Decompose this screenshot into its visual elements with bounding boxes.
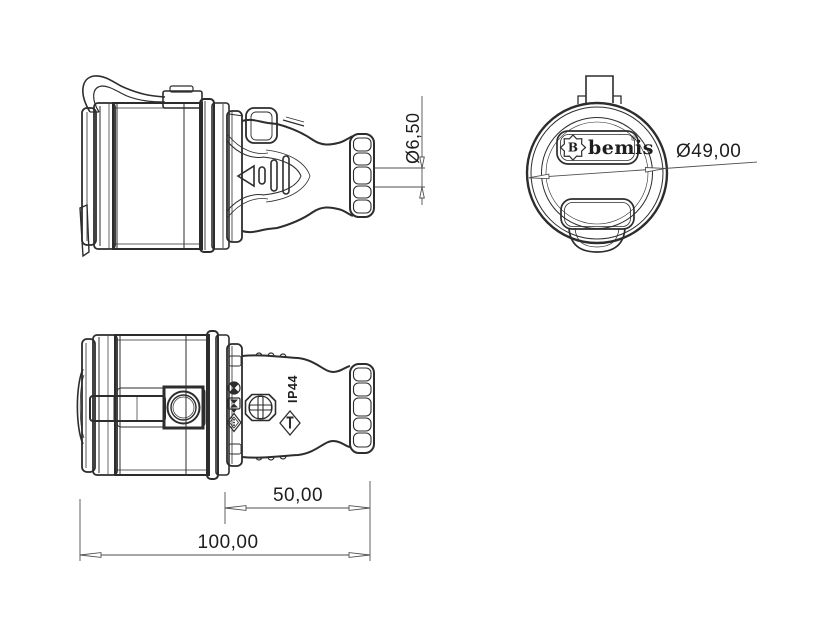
dimension-cable-entry: Ø6,50 [375, 96, 425, 205]
body-cylinder [113, 103, 202, 249]
dim-arrow-icon [349, 506, 370, 511]
dim-label-overall: 100,00 [197, 532, 258, 553]
diamond-tool-icon [280, 411, 300, 435]
latch-slider [90, 387, 205, 428]
dim-label-front-section: 50,00 [273, 485, 323, 506]
phillips-screw-icon [246, 395, 276, 421]
side-view-capped: Ø6,50 [80, 76, 425, 256]
triangle-marker-icon [238, 166, 254, 186]
neck-top-edge [242, 355, 350, 372]
strap-anchor-block [163, 91, 202, 108]
dim-arrow-icon [529, 174, 549, 179]
dim-label-cable-entry: Ø6,50 [403, 112, 423, 164]
body-cylinder [115, 335, 209, 475]
dim-arrow-icon [80, 553, 101, 558]
dim-arrow-icon [420, 187, 425, 198]
dim-arrow-icon [225, 506, 246, 511]
logo-initial: B [568, 141, 578, 155]
technical-drawing-canvas: Ø6,50 B bemis ® [0, 0, 825, 625]
latch-button [168, 392, 200, 424]
dim-label-diameter: Ø49,00 [676, 141, 741, 162]
front-view: B bemis ® Ø49,00 [527, 76, 757, 252]
neck-bottom-edge [242, 207, 353, 232]
registered-mark: ® [631, 135, 637, 143]
latch-button-housing [164, 387, 203, 428]
drawing-sheet: Ø6,50 B bemis ® [0, 0, 825, 625]
logo-brand-text: bemis [588, 137, 654, 159]
hinge-tab [586, 76, 613, 103]
neck-bottom-edge [242, 441, 350, 458]
top-view: IP44 50,00 [77, 331, 374, 561]
cable-grip [350, 364, 374, 453]
cable-grip [350, 134, 374, 217]
bemis-logo: B bemis ® [557, 131, 654, 164]
dim-arrow-icon [349, 553, 370, 558]
ip-rating-label: IP44 [286, 375, 300, 403]
